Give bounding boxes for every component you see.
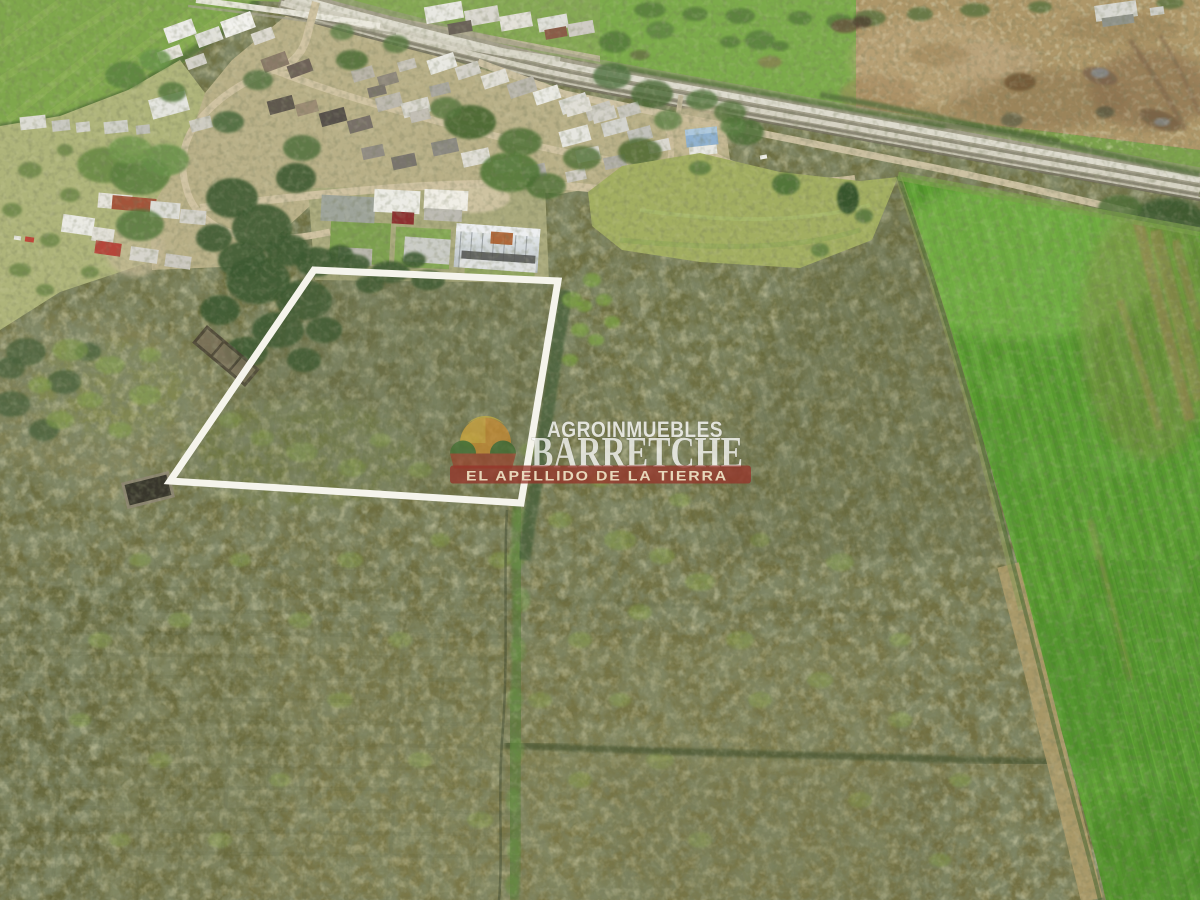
svg-text:EL APELLIDO DE LA TIERRA: EL APELLIDO DE LA TIERRA — [466, 467, 728, 483]
